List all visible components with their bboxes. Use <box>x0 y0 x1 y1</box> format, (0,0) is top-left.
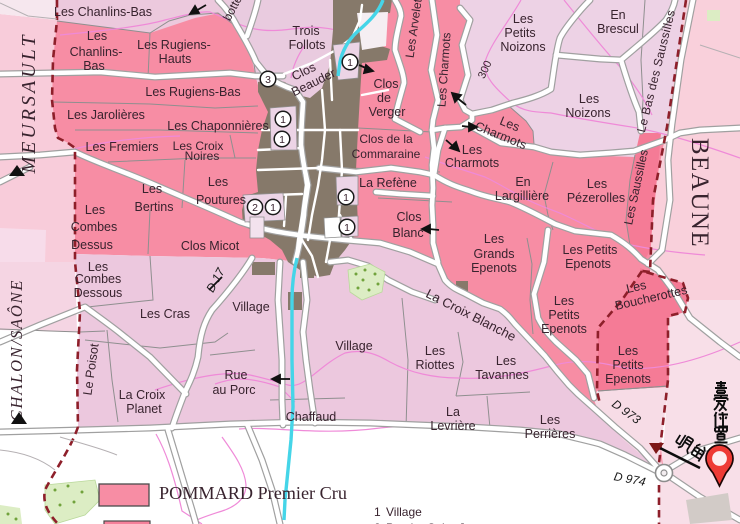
svg-text:1: 1 <box>374 505 381 519</box>
svg-text:Les Chaponnières: Les Chaponnières <box>167 119 268 133</box>
svg-text:CHALON/SAÔNE: CHALON/SAÔNE <box>7 279 26 422</box>
svg-text:Les Petits: Les Petits <box>563 243 618 257</box>
svg-text:Les: Les <box>208 175 228 189</box>
svg-text:Village: Village <box>335 339 372 353</box>
svg-text:3: 3 <box>265 74 271 86</box>
svg-text:Les: Les <box>579 92 599 106</box>
svg-text:Bertins: Bertins <box>135 200 174 214</box>
svg-text:Les Rugiens-: Les Rugiens- <box>137 38 211 52</box>
svg-text:Chaffaud: Chaffaud <box>286 410 337 424</box>
svg-text:Les: Les <box>540 413 560 427</box>
svg-text:1: 1 <box>343 192 349 204</box>
svg-text:Les: Les <box>513 12 533 26</box>
svg-text:Petits: Petits <box>612 358 643 372</box>
svg-text:Petits: Petits <box>504 26 535 40</box>
svg-text:Les: Les <box>496 354 516 368</box>
svg-text:Commaraine: Commaraine <box>352 147 421 161</box>
svg-text:Village: Village <box>232 300 269 314</box>
svg-text:Brescul: Brescul <box>597 22 639 36</box>
svg-text:de: de <box>377 91 391 105</box>
svg-text:Les Fremiers: Les Fremiers <box>86 140 159 154</box>
svg-text:Combes: Combes <box>71 220 118 234</box>
svg-text:Perrières: Perrières <box>525 427 576 441</box>
svg-text:Les: Les <box>587 177 607 191</box>
svg-text:Hauts: Hauts <box>159 52 192 66</box>
svg-text:Rue: Rue <box>225 368 248 382</box>
svg-text:1: 1 <box>279 134 285 146</box>
svg-text:Combes: Combes <box>75 272 122 286</box>
svg-text:Dessous: Dessous <box>74 286 123 300</box>
svg-text:Dessus: Dessus <box>71 238 113 252</box>
svg-text:Clos Micot: Clos Micot <box>181 239 240 253</box>
svg-text:BEAUNE: BEAUNE <box>686 138 713 248</box>
svg-text:Les: Les <box>87 29 107 43</box>
svg-text:Noizons: Noizons <box>565 106 610 120</box>
svg-text:1: 1 <box>347 57 353 69</box>
svg-text:Les: Les <box>142 182 162 196</box>
svg-text:Charmots: Charmots <box>445 156 499 170</box>
svg-text:Village: Village <box>386 505 422 519</box>
svg-text:Largillière: Largillière <box>495 189 549 203</box>
svg-text:Noizons: Noizons <box>500 40 545 54</box>
svg-text:La Croix: La Croix <box>119 388 166 402</box>
svg-text:Petits: Petits <box>548 308 579 322</box>
svg-text:Riottes: Riottes <box>416 358 455 372</box>
svg-text:Blanc: Blanc <box>392 226 423 240</box>
svg-text:POMMARD Premier Cru: POMMARD Premier Cru <box>159 483 347 503</box>
svg-text:1: 1 <box>344 222 350 234</box>
svg-text:Epenots: Epenots <box>471 261 517 275</box>
svg-text:2: 2 <box>252 202 258 214</box>
svg-text:Follots: Follots <box>289 38 326 52</box>
svg-text:La Refène: La Refène <box>359 176 417 190</box>
svg-text:Noires: Noires <box>185 149 220 163</box>
svg-text:Levrière: Levrière <box>430 419 475 433</box>
svg-text:Epenots: Epenots <box>605 372 651 386</box>
svg-text:Les Chanlins-Bas: Les Chanlins-Bas <box>54 5 152 19</box>
svg-text:1: 1 <box>280 114 286 126</box>
svg-text:Les: Les <box>425 344 445 358</box>
svg-text:Planet: Planet <box>126 402 162 416</box>
svg-text:Pézerolles: Pézerolles <box>567 191 625 205</box>
svg-text:En: En <box>515 175 530 189</box>
svg-text:Les: Les <box>618 344 638 358</box>
svg-text:Les: Les <box>554 294 574 308</box>
svg-text:Les: Les <box>85 203 105 217</box>
svg-text:Chanlins-: Chanlins- <box>70 45 123 59</box>
svg-text:Epenots: Epenots <box>541 322 587 336</box>
svg-text:1: 1 <box>270 202 276 214</box>
svg-text:Clos: Clos <box>396 210 421 224</box>
svg-text:Les: Les <box>462 143 482 157</box>
svg-text:Verger: Verger <box>369 105 406 119</box>
svg-text:Bas: Bas <box>83 59 105 73</box>
svg-text:MEURSAULT: MEURSAULT <box>18 32 40 174</box>
svg-text:Les Jarolières: Les Jarolières <box>67 108 145 122</box>
svg-text:Epenots: Epenots <box>565 257 611 271</box>
svg-text:Trois: Trois <box>292 24 319 38</box>
svg-text:Les Cras: Les Cras <box>140 307 190 321</box>
svg-text:Les: Les <box>484 232 504 246</box>
svg-text:Clos de la: Clos de la <box>359 132 413 146</box>
svg-text:La: La <box>446 405 460 419</box>
svg-text:Tavannes: Tavannes <box>475 368 529 382</box>
svg-text:Grands: Grands <box>474 247 515 261</box>
svg-text:au Porc: au Porc <box>212 383 255 397</box>
svg-text:Les Rugiens-Bas: Les Rugiens-Bas <box>145 85 240 99</box>
svg-text:En: En <box>610 8 625 22</box>
svg-text:Clos: Clos <box>373 77 398 91</box>
svg-text:Poutures: Poutures <box>196 193 246 207</box>
